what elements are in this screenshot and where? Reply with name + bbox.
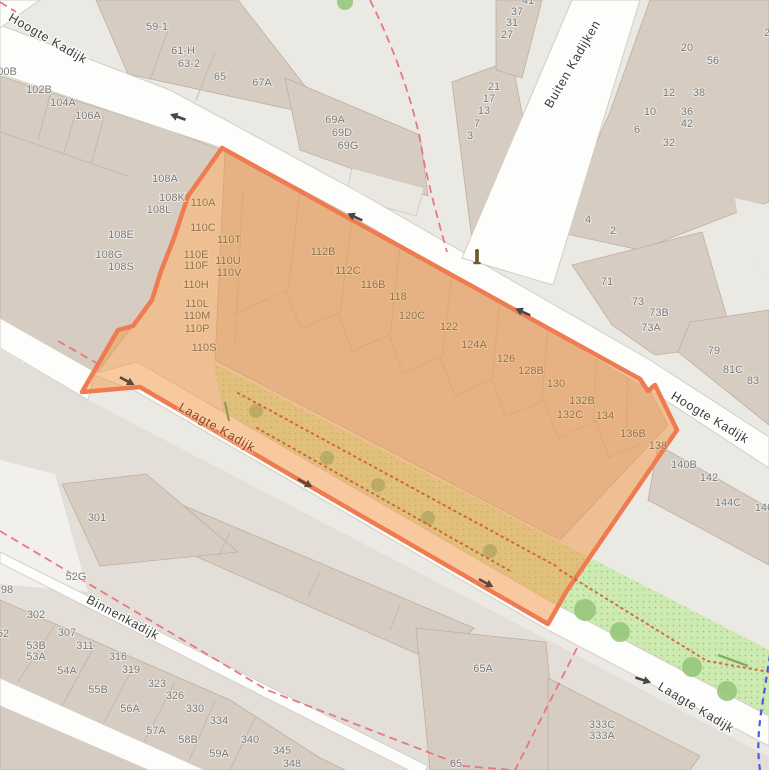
house-number-label: 69D bbox=[332, 127, 352, 139]
house-number-label: 316 bbox=[109, 651, 127, 663]
house-number-label: 81C bbox=[723, 364, 743, 376]
house-number-label: 108A bbox=[152, 173, 178, 185]
house-number-label: 54A bbox=[57, 665, 77, 677]
house-number-label: 73B bbox=[649, 307, 669, 319]
house-number-label: 36 bbox=[681, 106, 693, 118]
house-number-label: 83 bbox=[747, 375, 759, 387]
house-number-label: 138 bbox=[649, 440, 667, 452]
house-number-label: 108L bbox=[147, 204, 171, 216]
house-number-label: 10 bbox=[644, 106, 656, 118]
house-number-label: 108E bbox=[108, 229, 134, 241]
house-number-label: 41 bbox=[522, 0, 534, 7]
tree-icon bbox=[574, 599, 596, 621]
house-number-label: 21 bbox=[488, 81, 500, 93]
house-number-label: 56A bbox=[120, 703, 140, 715]
house-number-label: 13 bbox=[478, 105, 490, 117]
house-number-label: 12 bbox=[663, 87, 675, 99]
house-number-label: 118 bbox=[389, 291, 407, 303]
house-number-label: 69A bbox=[325, 114, 345, 126]
house-number-label: 73 bbox=[632, 296, 644, 308]
house-number-label: 53A bbox=[26, 651, 46, 663]
house-number-label: 301 bbox=[88, 512, 106, 524]
house-number-label: 323 bbox=[148, 678, 166, 690]
house-number-label: 110L bbox=[185, 298, 209, 310]
house-number-label: 110F bbox=[184, 260, 209, 272]
house-number-label: 58B bbox=[178, 734, 198, 746]
house-number-label: 334 bbox=[210, 715, 228, 727]
house-number-label: 106A bbox=[75, 110, 101, 122]
house-number-label: 132B bbox=[569, 395, 595, 407]
house-number-label: 122 bbox=[440, 321, 458, 333]
house-number-label: 326 bbox=[166, 690, 184, 702]
house-number-label: 27 bbox=[501, 29, 513, 41]
house-number-label: 124A bbox=[461, 339, 487, 351]
house-number-label: 110V bbox=[217, 267, 243, 279]
map-svg: 100B102B104A106A59-161-H63-26567A69A69D6… bbox=[0, 0, 769, 770]
house-number-label: 55B bbox=[88, 684, 108, 696]
house-number-label: 110C bbox=[190, 222, 216, 234]
house-number-label: 6 bbox=[634, 124, 640, 136]
house-number-label: 73A bbox=[641, 322, 661, 334]
house-number-label: 65A bbox=[473, 663, 493, 675]
building-block bbox=[416, 628, 558, 770]
house-number-label: 2 bbox=[610, 225, 616, 237]
tree-icon bbox=[320, 451, 334, 465]
house-number-label: 110A bbox=[191, 197, 217, 209]
house-number-label: 7 bbox=[474, 118, 480, 130]
house-number-label: 319 bbox=[122, 664, 140, 676]
house-number-label: 130 bbox=[547, 378, 565, 390]
house-number-label: 110M bbox=[184, 310, 211, 322]
house-number-label: 348 bbox=[283, 758, 301, 770]
house-number-label: 126 bbox=[497, 353, 515, 365]
tree-icon bbox=[483, 544, 497, 558]
house-number-label: 17 bbox=[483, 93, 495, 105]
tree-icon bbox=[682, 657, 702, 677]
house-number-label: 108K bbox=[159, 192, 185, 204]
house-number-label: 104A bbox=[50, 97, 76, 109]
house-number-label: 79 bbox=[708, 345, 720, 357]
tree-icon bbox=[371, 478, 385, 492]
house-number-label: 56 bbox=[707, 55, 719, 67]
house-number-label: 110U bbox=[215, 255, 241, 267]
house-number-label: 302 bbox=[27, 609, 45, 621]
house-number-label: 100B bbox=[0, 66, 17, 78]
house-number-label: 57A bbox=[146, 725, 166, 737]
house-number-label: 42 bbox=[681, 118, 693, 130]
house-number-label: 340 bbox=[241, 734, 259, 746]
house-number-label: 2 bbox=[764, 27, 769, 39]
house-number-label: 120C bbox=[399, 310, 425, 322]
house-number-label: 102B bbox=[26, 84, 52, 96]
house-number-label: 112B bbox=[311, 246, 336, 258]
house-number-label: 134 bbox=[596, 410, 614, 422]
house-number-label: 65 bbox=[450, 758, 462, 770]
house-number-label: 98 bbox=[1, 584, 13, 596]
house-number-label: 110P bbox=[185, 323, 210, 335]
house-number-label: 62 bbox=[0, 628, 9, 640]
house-number-label: 136B bbox=[620, 428, 646, 440]
house-number-label: 108G bbox=[96, 249, 123, 261]
house-number-label: 333A bbox=[589, 730, 615, 742]
house-number-label: 307 bbox=[58, 627, 76, 639]
house-number-label: 110T bbox=[217, 234, 242, 246]
house-number-label: 59-1 bbox=[146, 21, 168, 33]
house-number-label: 330 bbox=[186, 703, 204, 715]
house-number-label: 59A bbox=[209, 748, 229, 760]
house-number-label: 69G bbox=[338, 140, 359, 152]
house-number-label: 52G bbox=[66, 571, 87, 583]
house-number-label: 144C bbox=[715, 497, 741, 509]
house-number-label: 31 bbox=[506, 17, 518, 29]
house-number-label: 63-2 bbox=[178, 58, 200, 70]
house-number-label: 112C bbox=[335, 265, 361, 277]
house-number-label: 116B bbox=[361, 279, 386, 291]
house-number-label: 140B bbox=[671, 459, 697, 471]
house-number-label: 38 bbox=[693, 87, 705, 99]
house-number-label: 61-H bbox=[171, 45, 195, 57]
tree-icon bbox=[249, 404, 263, 418]
house-number-label: 67A bbox=[252, 77, 272, 89]
house-number-label: 132C bbox=[557, 409, 583, 421]
tree-icon bbox=[717, 681, 737, 701]
house-number-label: 142 bbox=[700, 472, 718, 484]
tree-icon bbox=[421, 511, 435, 525]
house-number-label: 128B bbox=[518, 365, 544, 377]
house-number-label: 32 bbox=[663, 137, 675, 149]
tree-icon bbox=[610, 622, 630, 642]
house-number-label: 110S bbox=[192, 342, 217, 354]
house-number-label: 20 bbox=[681, 42, 693, 54]
house-number-label: 4 bbox=[585, 214, 591, 226]
house-number-label: 71 bbox=[601, 276, 613, 288]
house-number-label: 345 bbox=[273, 745, 291, 757]
house-number-label: 3 bbox=[467, 130, 473, 142]
house-number-label: 110H bbox=[183, 279, 209, 291]
house-number-label: 311 bbox=[76, 640, 94, 652]
house-number-label: 108S bbox=[108, 261, 134, 273]
house-number-label: 146 bbox=[755, 502, 769, 514]
map-canvas[interactable]: 100B102B104A106A59-161-H63-26567A69A69D6… bbox=[0, 0, 769, 770]
house-number-label: 65 bbox=[214, 71, 226, 83]
